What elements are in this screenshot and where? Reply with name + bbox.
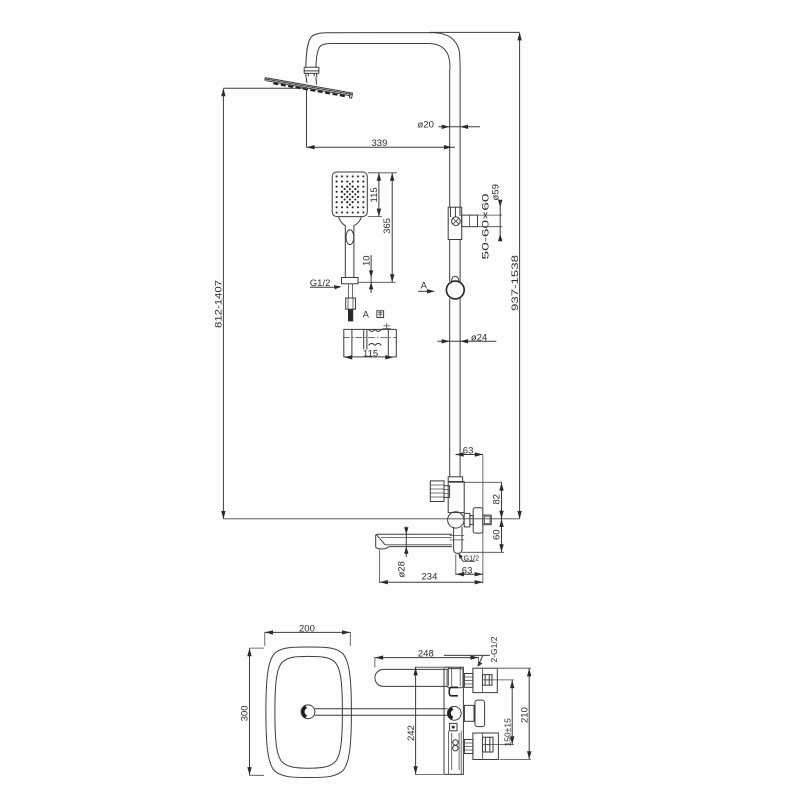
- svg-text:115: 115: [369, 187, 380, 202]
- svg-text:242: 242: [406, 725, 417, 741]
- svg-text:63: 63: [462, 565, 473, 576]
- svg-text:365: 365: [382, 218, 393, 234]
- svg-text:ø20: ø20: [418, 120, 434, 131]
- svg-text:115: 115: [363, 348, 378, 359]
- svg-text:210: 210: [519, 707, 530, 723]
- svg-text:ø59: ø59: [491, 184, 502, 200]
- svg-text:ø24: ø24: [471, 333, 487, 344]
- svg-text:A: A: [421, 280, 428, 291]
- svg-text:200: 200: [299, 623, 315, 634]
- svg-text:339: 339: [372, 138, 388, 149]
- svg-text:150±15: 150±15: [503, 718, 513, 747]
- svg-text:937-1538: 937-1538: [510, 255, 521, 311]
- svg-text:63: 63: [463, 446, 474, 457]
- svg-text:A: A: [363, 310, 370, 321]
- svg-text:234: 234: [422, 571, 438, 582]
- svg-text:2-G1/2: 2-G1/2: [489, 636, 499, 662]
- svg-text:248: 248: [418, 649, 434, 660]
- svg-text:10: 10: [361, 255, 372, 266]
- svg-text:812-1407: 812-1407: [214, 280, 225, 328]
- svg-text:300: 300: [240, 705, 251, 721]
- svg-text:82: 82: [492, 494, 503, 505]
- svg-text:ø28: ø28: [397, 561, 408, 577]
- svg-text:60: 60: [492, 529, 503, 540]
